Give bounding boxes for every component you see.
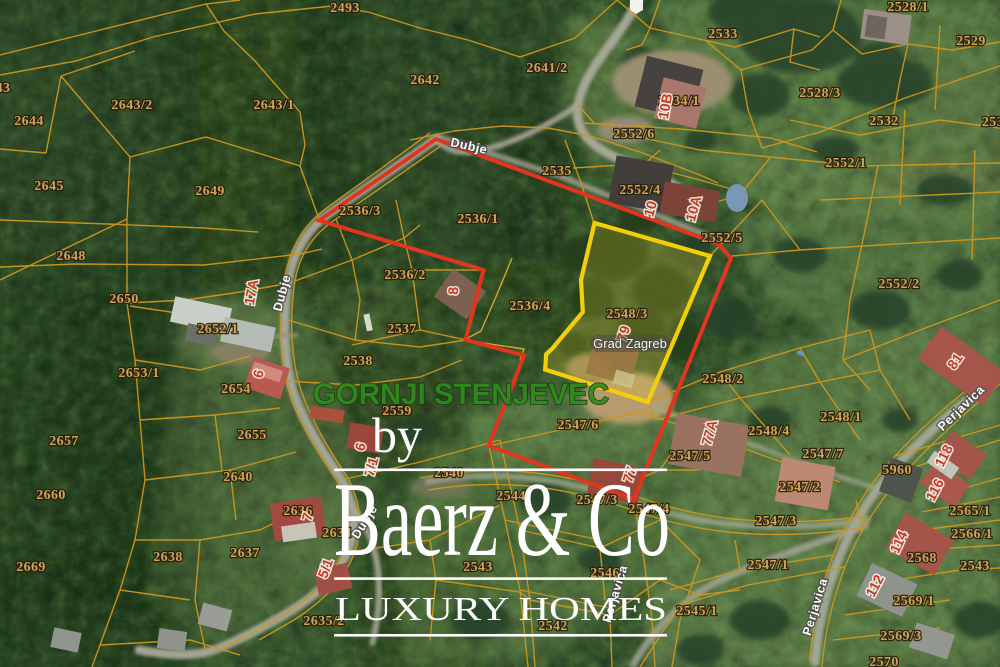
svg-text:2660: 2660: [36, 488, 66, 503]
svg-text:2566/1: 2566/1: [951, 527, 992, 542]
svg-text:2552/4: 2552/4: [619, 183, 660, 198]
svg-text:2536/1: 2536/1: [457, 212, 498, 227]
svg-text:2538: 2538: [343, 354, 373, 369]
svg-text:2547/5: 2547/5: [669, 449, 710, 464]
svg-text:2548/3: 2548/3: [606, 307, 647, 322]
svg-text:2547/1: 2547/1: [747, 558, 788, 573]
svg-text:2547/7: 2547/7: [802, 447, 843, 462]
svg-text:2568: 2568: [907, 551, 937, 566]
svg-text:2638: 2638: [153, 550, 183, 565]
svg-text:2536/4: 2536/4: [509, 299, 550, 314]
svg-text:2569/3: 2569/3: [880, 629, 921, 644]
svg-text:2565/1: 2565/1: [949, 504, 990, 519]
svg-text:2637: 2637: [230, 546, 260, 561]
svg-text:2529: 2529: [956, 34, 986, 49]
svg-text:2650: 2650: [109, 292, 139, 307]
svg-text:2543: 2543: [960, 559, 990, 574]
svg-text:2640: 2640: [223, 470, 253, 485]
svg-text:5960: 5960: [882, 463, 912, 478]
svg-text:2547/3: 2547/3: [755, 514, 796, 529]
svg-text:Grad Zagreb: Grad Zagreb: [593, 336, 667, 351]
svg-text:GORNJI STENJEVEC: GORNJI STENJEVEC: [313, 378, 609, 411]
svg-text:2552/1: 2552/1: [825, 156, 866, 171]
svg-text:2493: 2493: [330, 1, 360, 16]
svg-text:2532: 2532: [869, 114, 899, 129]
svg-text:2536/2: 2536/2: [384, 268, 425, 283]
svg-text:2547/6: 2547/6: [557, 418, 598, 433]
svg-text:253: 253: [982, 115, 1000, 130]
svg-text:2552/5: 2552/5: [701, 231, 742, 246]
svg-text:2655: 2655: [237, 428, 267, 443]
svg-text:2548/1: 2548/1: [820, 410, 861, 425]
svg-text:2548/4: 2548/4: [748, 424, 789, 439]
svg-text:2569/1: 2569/1: [893, 594, 934, 609]
svg-text:2535: 2535: [542, 164, 572, 179]
svg-text:2648: 2648: [56, 249, 86, 264]
svg-text:2537: 2537: [387, 322, 417, 337]
svg-text:2645: 2645: [34, 179, 64, 194]
svg-text:Baerz & Co: Baerz & Co: [334, 461, 670, 578]
svg-text:2669: 2669: [16, 560, 46, 575]
svg-text:2641/2: 2641/2: [526, 61, 567, 76]
svg-text:2643/1: 2643/1: [253, 98, 294, 113]
svg-text:2533: 2533: [708, 27, 738, 42]
svg-text:LUXURY HOMES: LUXURY HOMES: [335, 591, 667, 628]
svg-text:2528/1: 2528/1: [887, 0, 928, 15]
svg-text:2644: 2644: [14, 114, 44, 129]
svg-text:2570: 2570: [869, 655, 899, 667]
svg-text:2545/1: 2545/1: [676, 604, 717, 619]
svg-text:2547/2: 2547/2: [779, 480, 820, 495]
svg-text:2552/6: 2552/6: [613, 127, 654, 142]
svg-text:2652/1: 2652/1: [197, 322, 238, 337]
svg-text:8: 8: [445, 286, 461, 295]
svg-text:2528/3: 2528/3: [799, 86, 840, 101]
svg-text:2642: 2642: [410, 73, 440, 88]
svg-text:43: 43: [0, 81, 10, 96]
svg-text:2552/2: 2552/2: [878, 277, 919, 292]
svg-text:2643/2: 2643/2: [111, 98, 152, 113]
svg-text:2536/3: 2536/3: [339, 204, 380, 219]
svg-text:2654: 2654: [221, 382, 251, 397]
svg-text:by: by: [372, 407, 422, 463]
svg-text:2653/1: 2653/1: [118, 366, 159, 381]
svg-text:2548/2: 2548/2: [702, 372, 743, 387]
svg-text:2657: 2657: [49, 434, 79, 449]
svg-text:2649: 2649: [195, 184, 225, 199]
